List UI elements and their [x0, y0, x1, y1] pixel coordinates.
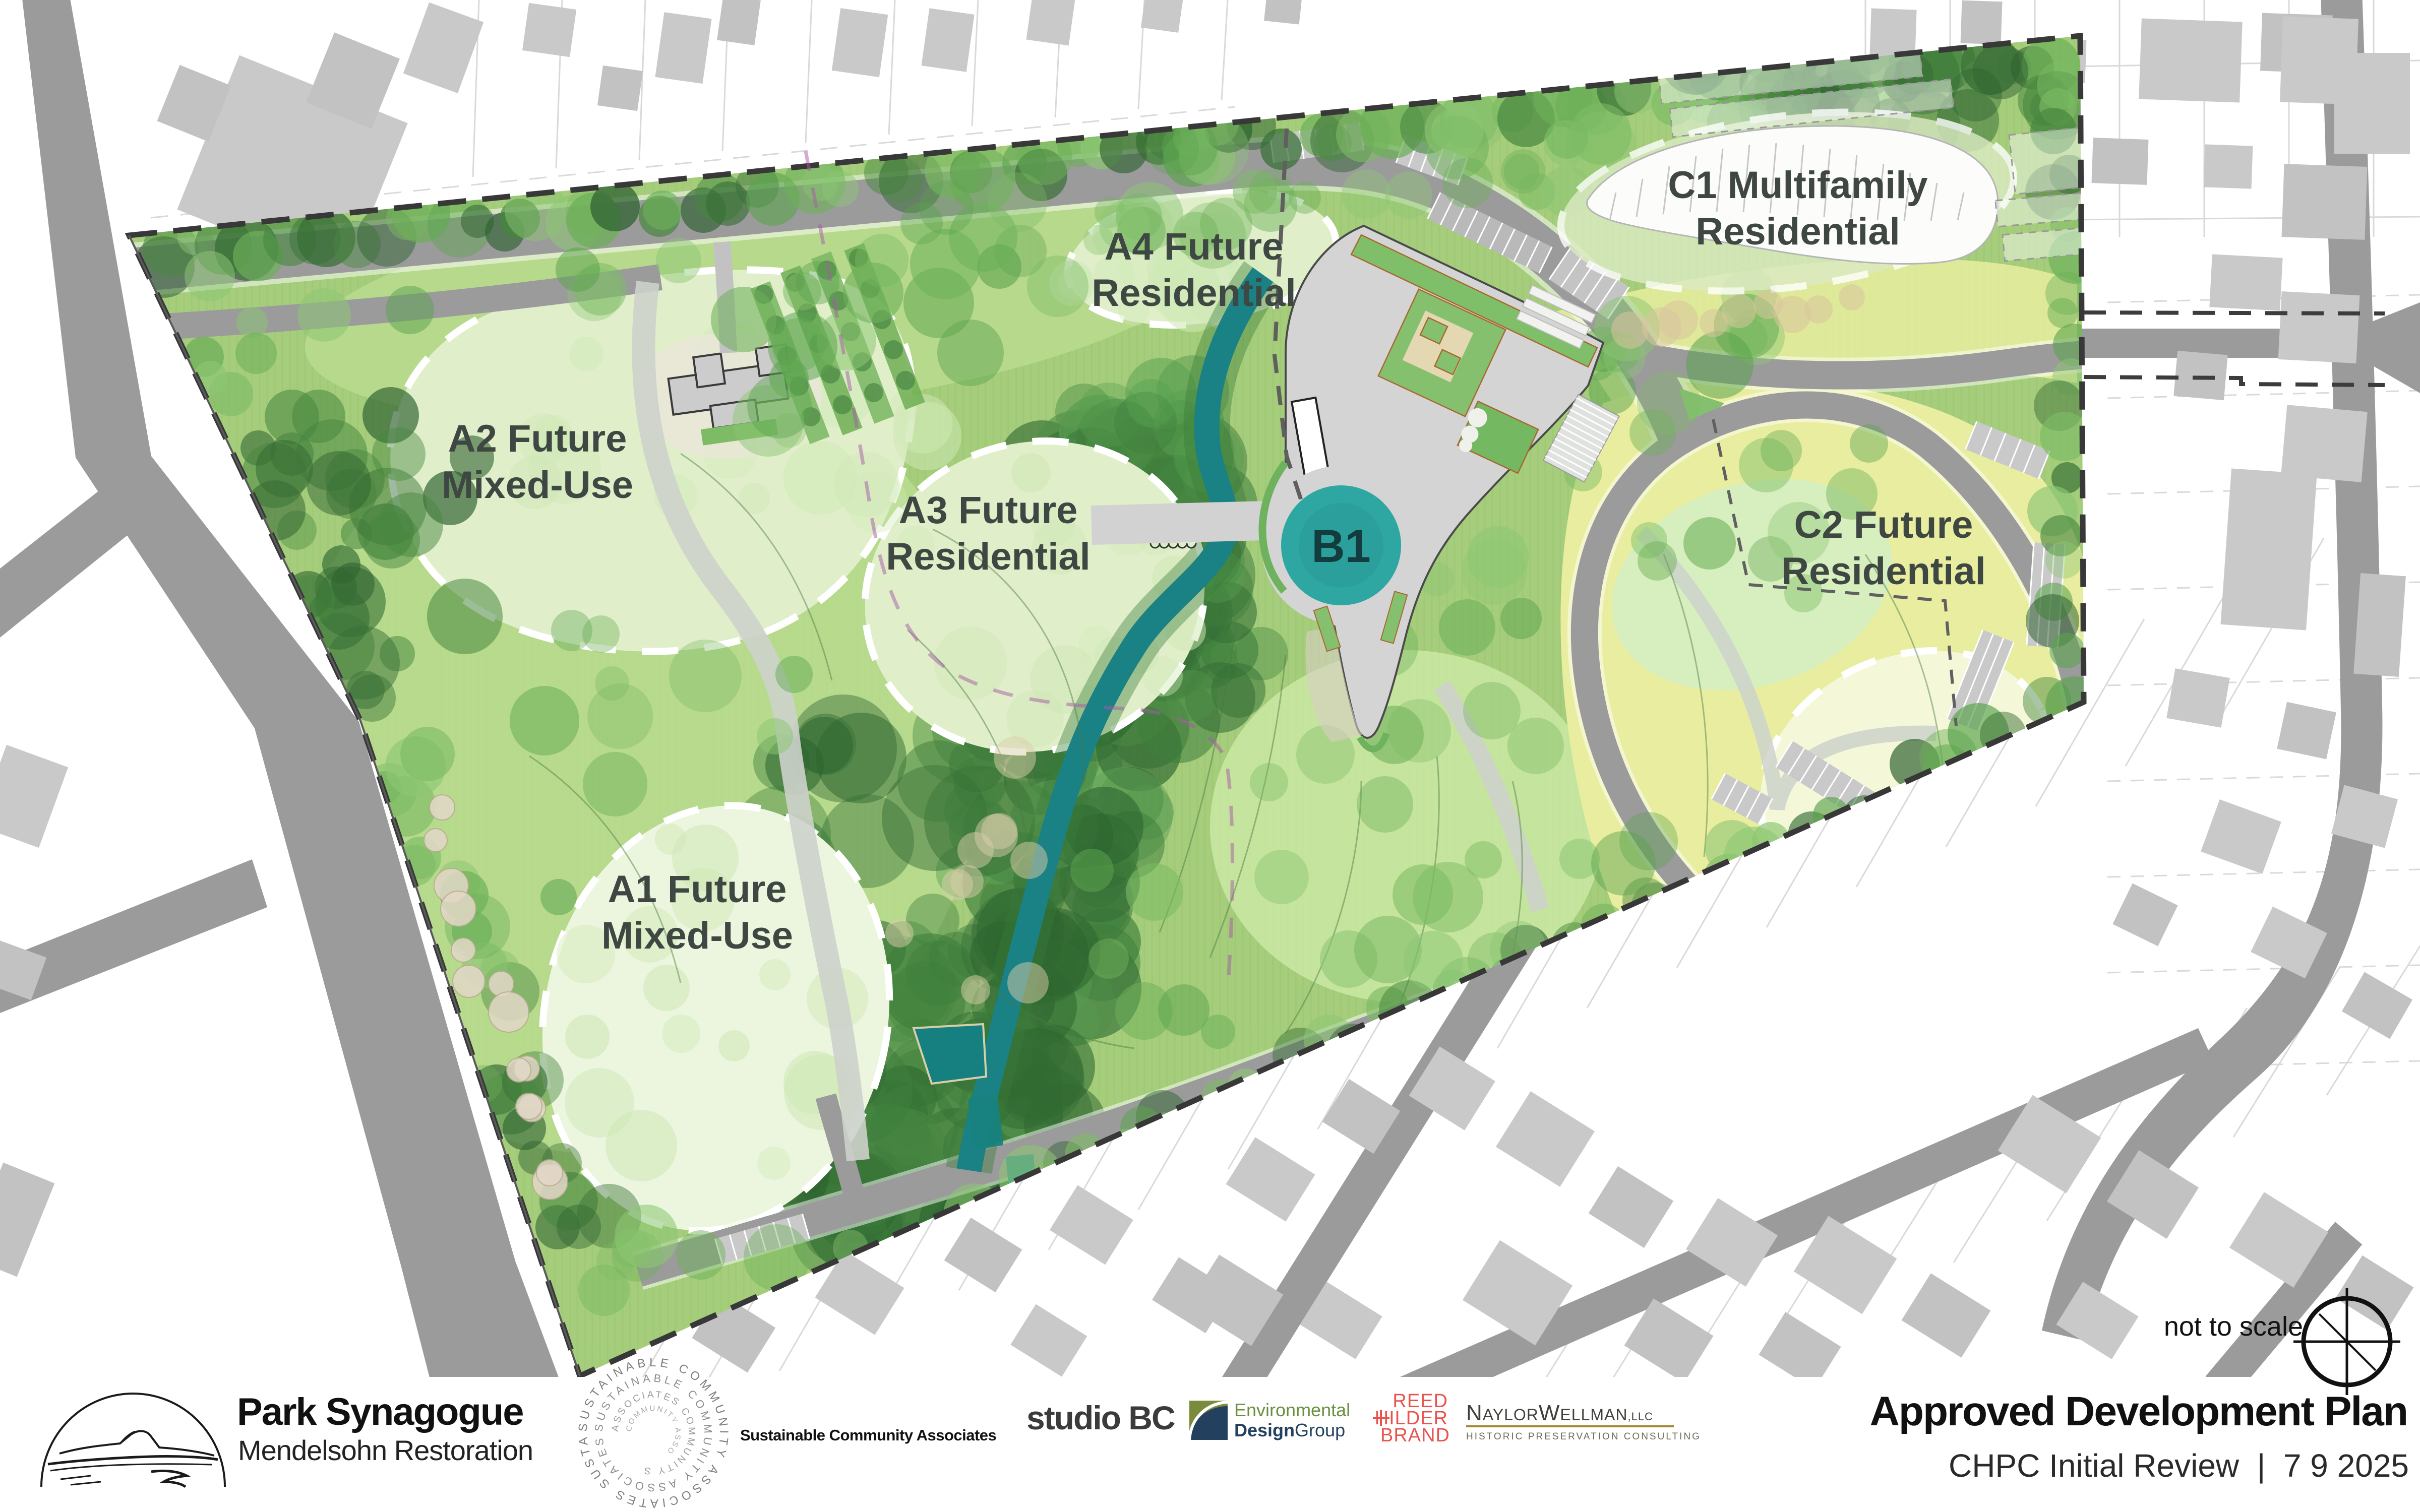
- svg-text:BRAND: BRAND: [1380, 1425, 1450, 1446]
- svg-text:not to scale: not to scale: [2164, 1311, 2303, 1342]
- svg-text:DesignGroup: DesignGroup: [1234, 1420, 1345, 1440]
- svg-text:Mendelsohn Restoration: Mendelsohn Restoration: [238, 1434, 533, 1466]
- svg-text:Park Synagogue: Park Synagogue: [237, 1391, 523, 1433]
- svg-text:A1 Future: A1 Future: [608, 868, 787, 911]
- svg-text:B1: B1: [1311, 521, 1371, 572]
- svg-text:Environmental: Environmental: [1234, 1400, 1350, 1420]
- svg-text:Residential: Residential: [886, 535, 1090, 578]
- svg-text:Mixed-Use: Mixed-Use: [442, 464, 633, 507]
- svg-text:Residential: Residential: [1092, 272, 1296, 314]
- svg-text:studio BC: studio BC: [1026, 1399, 1175, 1436]
- svg-text:Sustainable Community Associat: Sustainable Community Associates: [740, 1426, 996, 1444]
- svg-text:HISTORIC PRESERVATION CONSULTI: HISTORIC PRESERVATION CONSULTING: [1466, 1431, 1701, 1442]
- svg-text:A4 Future: A4 Future: [1105, 225, 1284, 268]
- svg-text:C1 Multifamily: C1 Multifamily: [1668, 164, 1927, 207]
- svg-text:Residential: Residential: [1781, 550, 1985, 593]
- svg-text:A3 Future: A3 Future: [899, 489, 1078, 532]
- svg-text:CHPC Initial Review | 7 9 20: CHPC Initial Review | 7 9 2025: [1949, 1447, 2409, 1484]
- svg-text:Residential: Residential: [1696, 210, 1900, 253]
- svg-text:Mixed-Use: Mixed-Use: [601, 914, 793, 957]
- svg-text:C2 Future: C2 Future: [1794, 503, 1973, 546]
- svg-text:A2 Future: A2 Future: [448, 417, 627, 460]
- svg-text:Approved Development Plan: Approved Development Plan: [1870, 1389, 2407, 1434]
